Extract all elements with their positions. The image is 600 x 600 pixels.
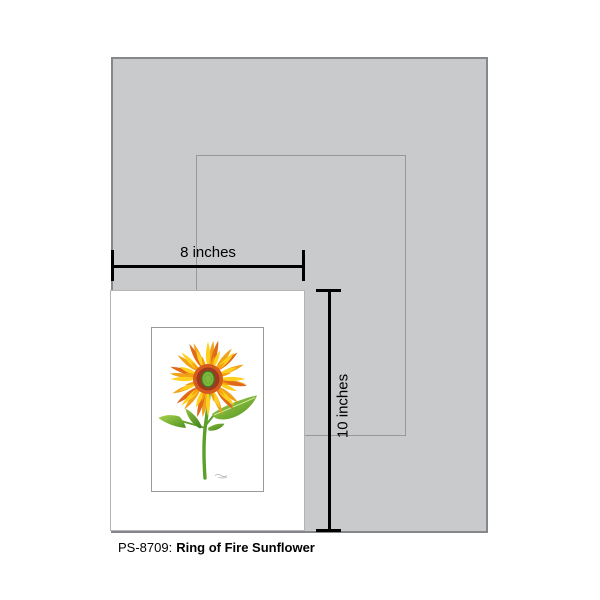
height-measure-label: 10 inches [335, 374, 352, 438]
sunflower-illustration [152, 328, 263, 491]
caption-title: Ring of Fire Sunflower [176, 540, 315, 555]
width-measure-line [112, 265, 304, 268]
width-measure-label: 8 inches [112, 244, 304, 261]
print-preview [110, 290, 305, 531]
artist-signature [215, 474, 227, 478]
height-measure-line [328, 290, 331, 531]
sunflower-artwork [151, 327, 264, 492]
height-measure-bottom-tick [316, 529, 341, 532]
size-comparison-diagram: 8 inches 10 inches PS-8709:Ring of Fire … [0, 0, 600, 600]
height-measure-top-tick [316, 289, 341, 292]
caption-sku: PS-8709: [118, 540, 172, 555]
caption: PS-8709:Ring of Fire Sunflower [118, 540, 315, 555]
